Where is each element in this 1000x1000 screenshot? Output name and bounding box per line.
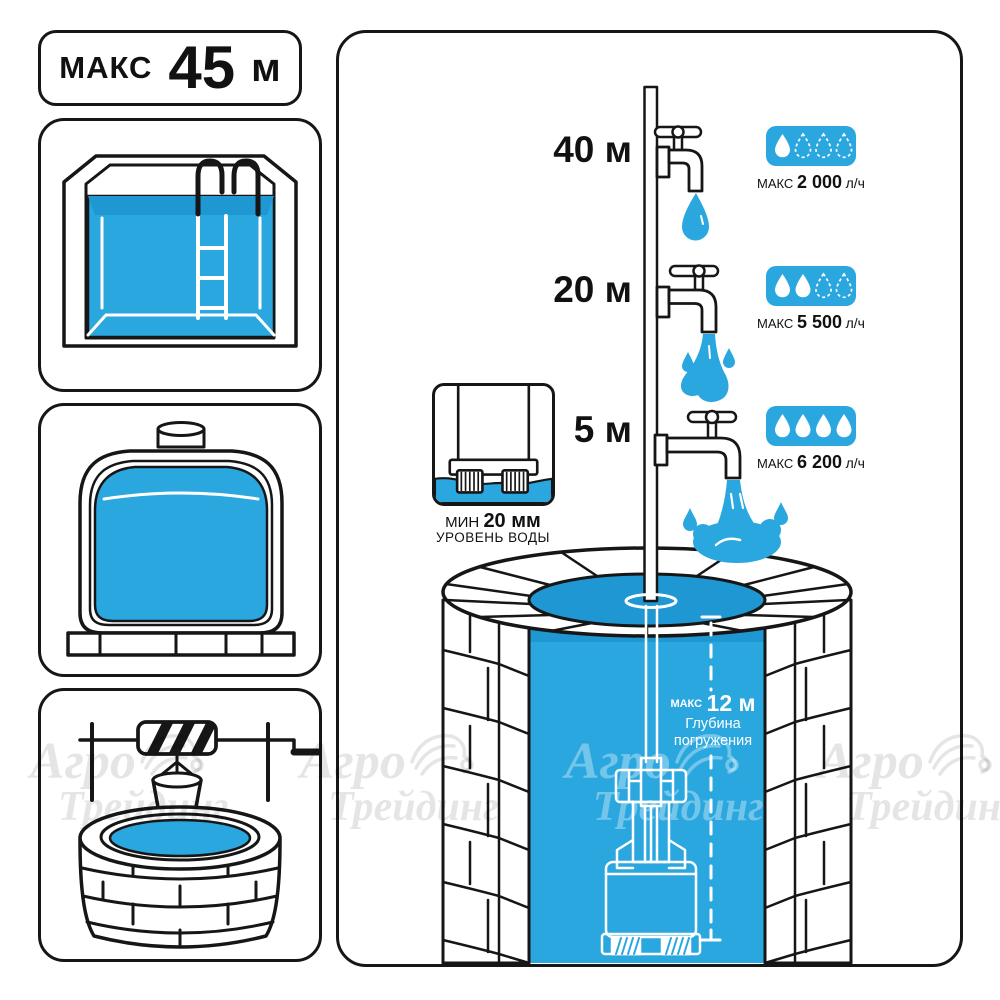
flow-caption-20m: МАКС 5 500 л/ч	[741, 312, 881, 333]
max-head-label: МАКС	[59, 50, 152, 86]
min-water-level-card	[432, 383, 555, 506]
tank-card	[38, 403, 322, 677]
small-well-card	[38, 688, 322, 962]
tap-height-label-20m: 20 м	[500, 271, 632, 309]
flow-badge-5m	[765, 405, 857, 447]
min-level-caption: УРОВЕНЬ ВОДЫ	[398, 530, 588, 545]
max-head-card: МАКС 45 м	[38, 30, 302, 106]
max-head-unit: м	[251, 46, 281, 91]
flow-badge-40m	[765, 125, 857, 167]
flow-badge-20m	[765, 265, 857, 307]
pool-card	[38, 118, 322, 392]
max-head-value: 45	[168, 38, 235, 98]
well-scene-card	[336, 30, 963, 967]
flow-caption-5m: МАКС 6 200 л/ч	[741, 452, 881, 473]
pump-infographic: МАКС 45 м	[0, 0, 1000, 1000]
flow-caption-40m: МАКС 2 000 л/ч	[741, 172, 881, 193]
tap-height-label-40m: 40 м	[500, 131, 632, 169]
min-water-level-art	[435, 386, 552, 503]
immersion-depth-label: МАКС 12 м Глубина погружения	[638, 690, 788, 750]
